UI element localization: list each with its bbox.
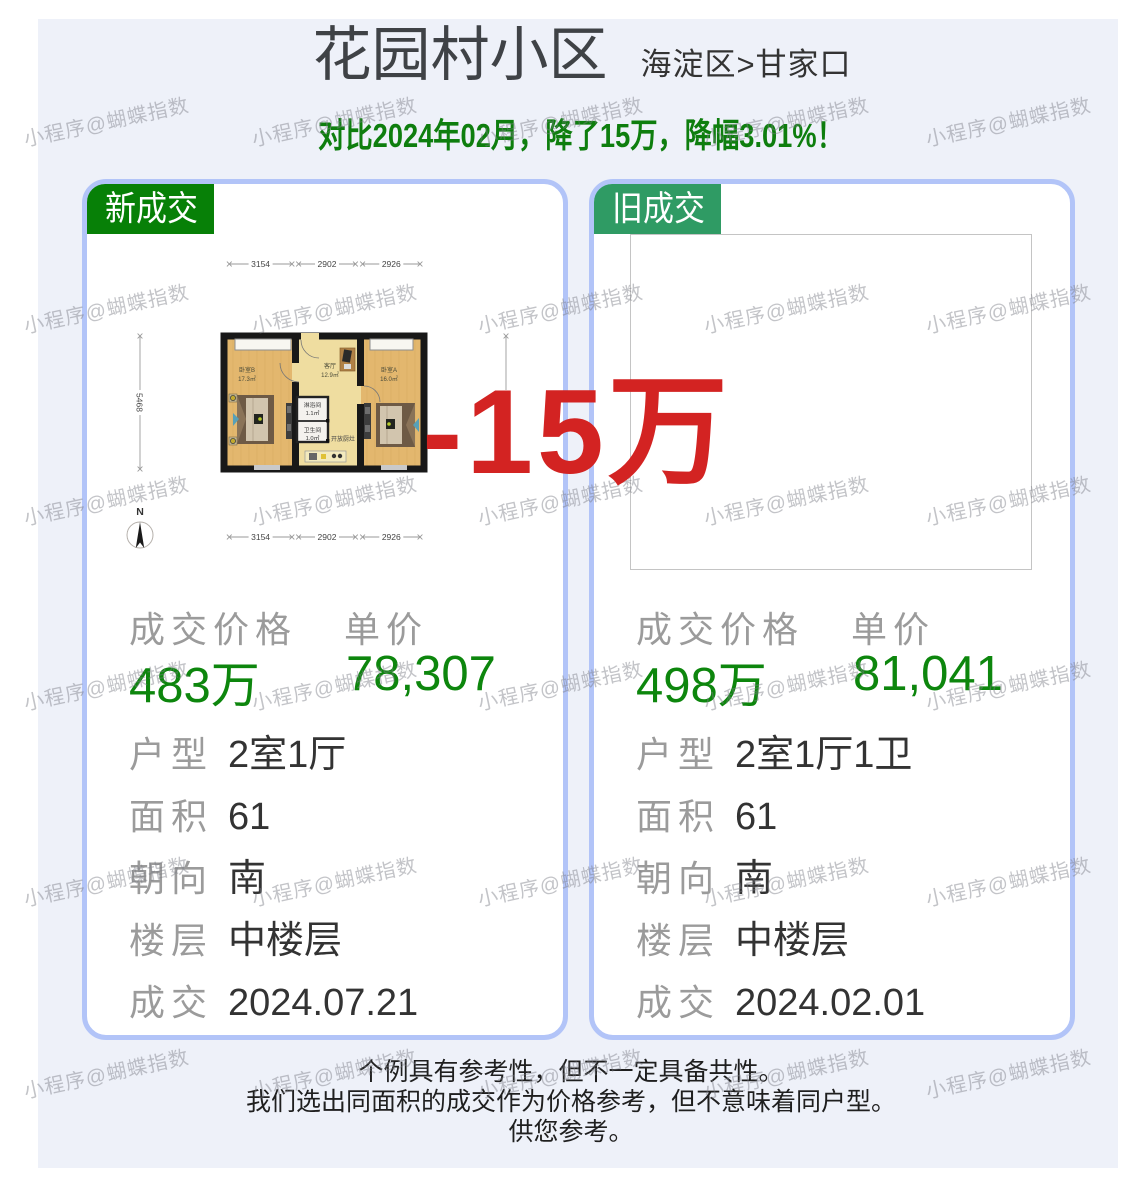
- svg-text:N: N: [136, 506, 144, 518]
- svg-text:3154: 3154: [251, 532, 270, 542]
- svg-text:2926: 2926: [382, 532, 401, 542]
- svg-text:3154: 3154: [251, 259, 270, 269]
- svg-text:2926: 2926: [382, 259, 401, 269]
- svg-text:2902: 2902: [318, 259, 337, 269]
- svg-text:2902: 2902: [318, 532, 337, 542]
- svg-text:客厅: 客厅: [324, 362, 336, 370]
